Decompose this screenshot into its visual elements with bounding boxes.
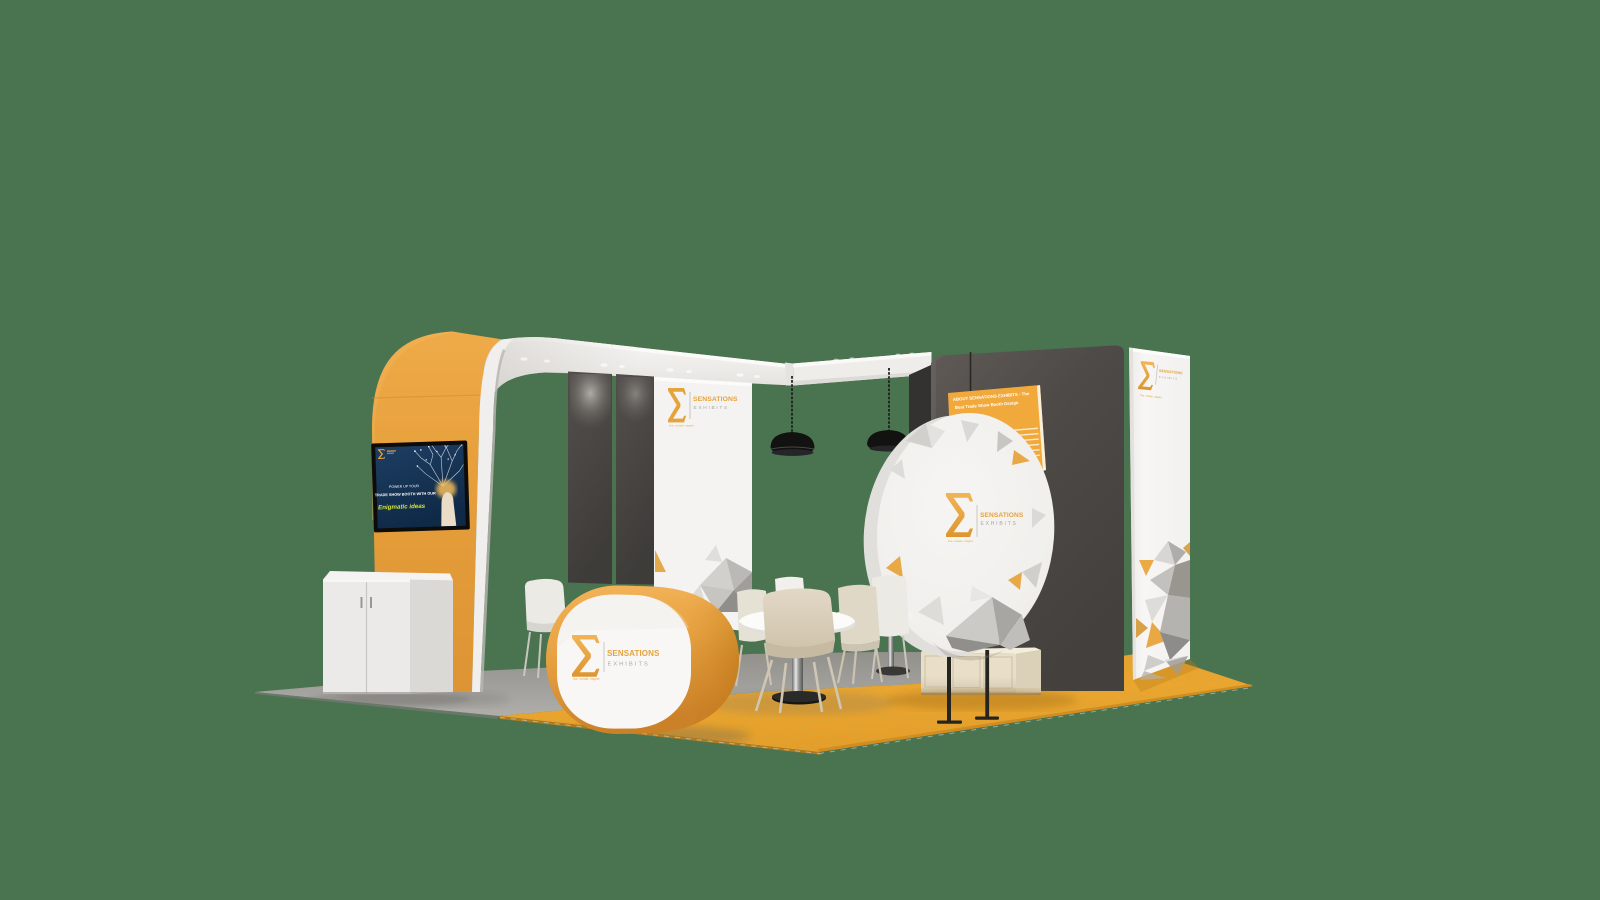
svg-text:SENSATIONS: SENSATIONS (980, 512, 1024, 519)
svg-text:EXHIBITS: EXHIBITS (981, 521, 1018, 527)
svg-text:SENSATIONS: SENSATIONS (693, 396, 738, 403)
svg-text:SENSATIONS: SENSATIONS (607, 649, 660, 658)
svg-text:live. create. inspire: live. create. inspire (669, 424, 694, 428)
svg-text:Enigmatic ideas: Enigmatic ideas (378, 503, 426, 511)
svg-text:EXHIBITS: EXHIBITS (694, 405, 729, 411)
svg-text:live. create. inspire: live. create. inspire (573, 677, 600, 681)
svg-text:EXHIBITS: EXHIBITS (608, 662, 650, 668)
svg-text:live. create. inspire: live. create. inspire (948, 539, 973, 543)
